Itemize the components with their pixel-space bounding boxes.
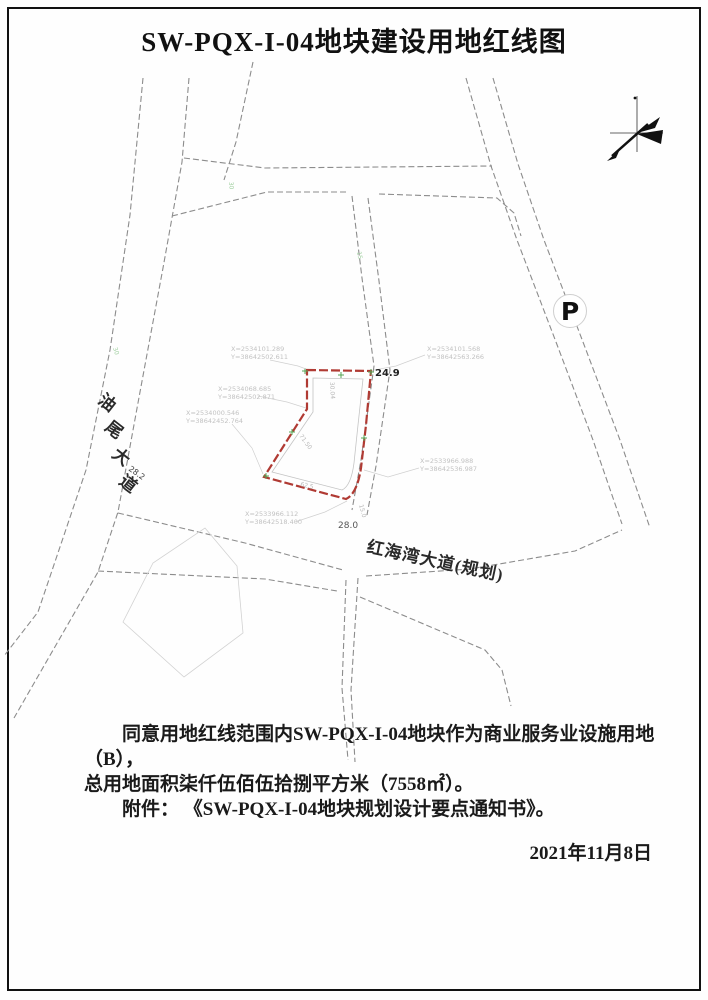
road-edge-top-lower-west: [172, 192, 347, 216]
coord-label-x: X=2534101.568: [427, 345, 480, 353]
north-arrow-icon: [607, 96, 663, 161]
road-name-youwei-dadao: 油 尾 大 道: [95, 389, 142, 496]
coord-label-x: X=2534000.546: [186, 409, 239, 417]
road-name-char: 油: [95, 389, 121, 415]
leader-line: [232, 424, 263, 474]
coordinate-labels: X=2534101.289 Y=38642502.611 X=2534101.5…: [185, 345, 484, 526]
coord-label-x: X=2534101.289: [231, 345, 284, 353]
road-edge-right-left: [466, 78, 622, 524]
approval-note-line3: 附件： 《SW-PQX-I-04地块规划设计要点通知书》。: [84, 797, 696, 822]
road-edge-stub-top: [224, 62, 253, 180]
leader-line: [295, 501, 347, 522]
road-name-honghaiwan-dadao: 红海湾大道(规划): [365, 536, 505, 585]
road-edge-middle-left: [352, 196, 374, 510]
coord-label-y: Y=38642452.764: [185, 417, 243, 425]
road-width-mark: 15: [355, 251, 363, 260]
compass-top-dot: [634, 97, 637, 100]
leader-line: [270, 360, 306, 369]
coord-label-x: X=2533966.988: [420, 457, 473, 465]
compass-needle: [612, 124, 648, 156]
compass-blade: [637, 130, 663, 144]
road-edge-middle-right: [367, 198, 390, 515]
coord-label-y: Y=38642536.987: [419, 465, 477, 473]
survey-cross: [338, 372, 344, 378]
road-edge-honghaiwan-lower-west: [98, 571, 337, 591]
road-width-mark: 30: [111, 346, 120, 356]
dimension-label: 15.0: [357, 504, 367, 519]
coord-label-y: Y=38642518.400: [244, 518, 302, 526]
road-edge-top-lower-east: [379, 194, 521, 236]
plot-dimension-labels: 30.04 71.50 62.5 15.0: [297, 382, 367, 519]
parking-letter: P: [561, 297, 579, 326]
dimension-label: 30.04: [328, 382, 336, 400]
road-edge-honghaiwan-lower-east: [360, 597, 511, 706]
road-width-mark: 30: [227, 182, 235, 190]
road-width-marks: 30 30 15: [111, 182, 363, 356]
plot-redline-boundary: [264, 370, 371, 499]
approval-note-line1: 同意用地红线范围内SW-PQX-I-04地块作为商业服务业设施用地（B），: [84, 722, 696, 772]
issue-date: 2021年11月8日: [0, 838, 652, 865]
leader-lines: [232, 355, 425, 522]
road-edge-honghaiwan-upper-west: [118, 513, 343, 570]
approval-note-line2: 总用地面积柒仟伍佰伍拾捌平方米（7558㎡）。: [84, 772, 696, 797]
dimension-label: 71.50: [297, 433, 313, 451]
road-width-label-honghaiwan: 28.0: [338, 521, 358, 531]
road-width-label-middle: 24.9: [375, 368, 400, 379]
survey-cross: [361, 435, 367, 441]
background-parcel-outline: [123, 528, 243, 677]
leader-line: [364, 468, 419, 477]
drawing-sheet: SW-PQX-I-04地块建设用地红线图: [0, 0, 708, 1000]
coord-label-y: Y=38642563.266: [426, 353, 484, 361]
coord-label-x: X=2534068.685: [218, 385, 271, 393]
coord-label-y: Y=38642502.871: [217, 393, 275, 401]
coord-label-y: Y=38642502.611: [230, 353, 288, 361]
parking-symbol: P: [554, 295, 587, 328]
plot-setback-line: [272, 378, 363, 490]
road-name-char: 尾: [102, 417, 127, 442]
road-edge-youwei-left: [4, 78, 143, 656]
roads: [4, 62, 650, 762]
survey-point-markers: [263, 368, 374, 479]
coord-label-x: X=2533966.112: [245, 510, 298, 518]
approval-note: 同意用地红线范围内SW-PQX-I-04地块作为商业服务业设施用地（B）， 总用…: [84, 722, 696, 822]
